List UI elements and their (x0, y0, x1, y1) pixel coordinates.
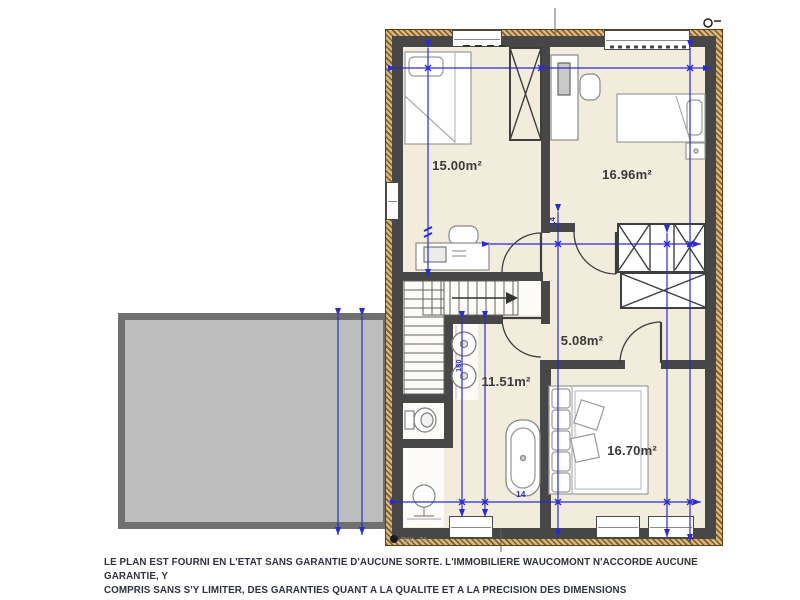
room-label-bedroom1696: 16.96m² (581, 167, 673, 182)
wall-bedroom1670-north-stub (661, 360, 706, 369)
wall-hall-west (541, 281, 550, 324)
disclaimer-line-1: LE PLAN EST FOURNI EN L'ETAT SANS GARANT… (104, 556, 752, 584)
room-label-bedroom1670: 16.70m² (586, 443, 678, 458)
wc-niche-zone (403, 403, 444, 439)
closet-horizontal (620, 272, 707, 309)
room-label-bathroom: 11.51m² (460, 374, 552, 389)
wall-bedroom15-south (403, 272, 543, 281)
wall-hall-north (541, 223, 575, 232)
window-bottom-left (449, 516, 493, 538)
wall-between-top-bedrooms (541, 47, 550, 233)
floor-plan-canvas: 14 14 180 RWA · T2 15.00m² 16.96m² 5.08m… (0, 0, 800, 600)
window-top-right (604, 30, 690, 50)
room-label-hallway: 5.08m² (536, 333, 628, 348)
disclaimer-line-2: COMPRIS SANS S'Y LIMITER, DES GARANTIES … (104, 584, 752, 598)
window-top-left (452, 30, 502, 47)
closet-row (617, 223, 706, 273)
roof-slab (118, 313, 390, 529)
wall-bath-west (444, 315, 453, 448)
stair-upper-flight-zone (403, 281, 541, 315)
window-west (386, 182, 399, 220)
top-right-marker-icon (704, 19, 721, 27)
disclaimer-text: LE PLAN EST FOURNI EN L'ETAT SANS GARANT… (104, 556, 752, 598)
wall-bath-north (445, 315, 503, 324)
wall-wc-north (403, 394, 445, 403)
room-label-bedroom15: 15.00m² (411, 158, 503, 173)
technical-room-zone (403, 448, 444, 527)
stair-lower-flight-zone (403, 315, 444, 394)
wall-bedroom1670-north (551, 360, 625, 369)
window-bottom-right (648, 516, 694, 538)
window-bottom-middle (596, 516, 640, 538)
wall-wc-south (403, 439, 450, 448)
